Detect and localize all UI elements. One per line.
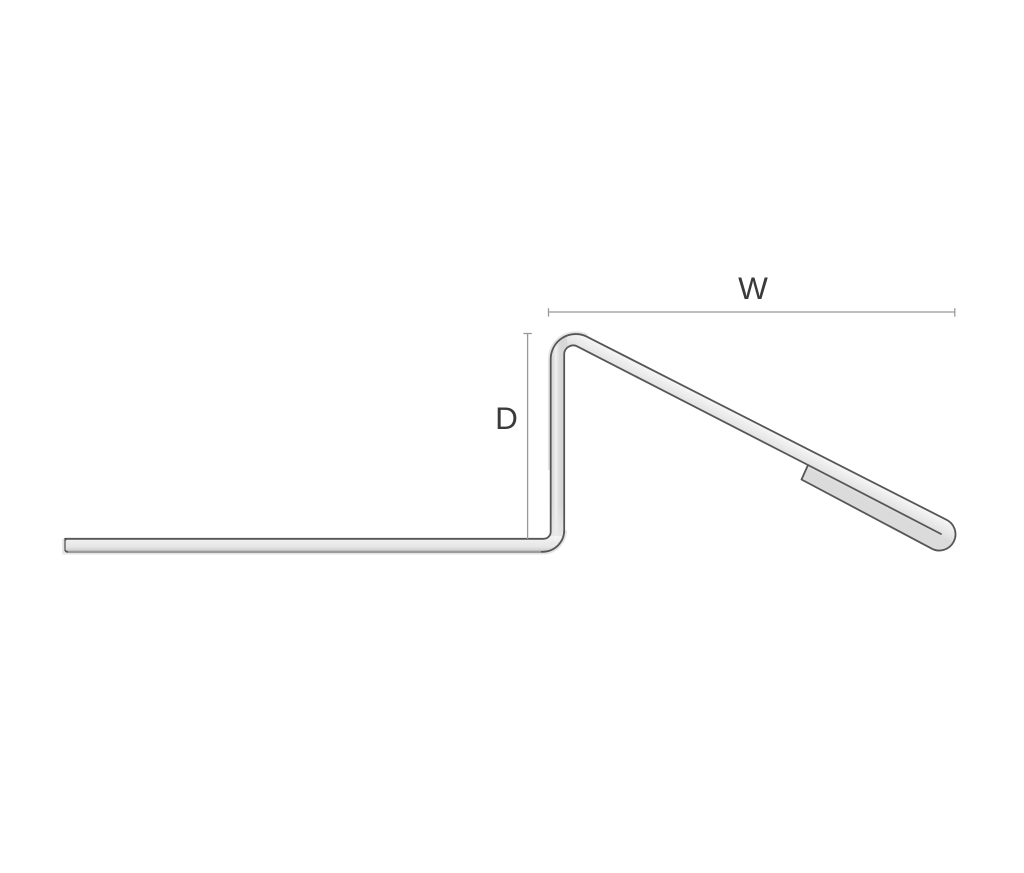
svg-text:D: D xyxy=(495,400,518,436)
svg-text:W: W xyxy=(738,270,768,306)
